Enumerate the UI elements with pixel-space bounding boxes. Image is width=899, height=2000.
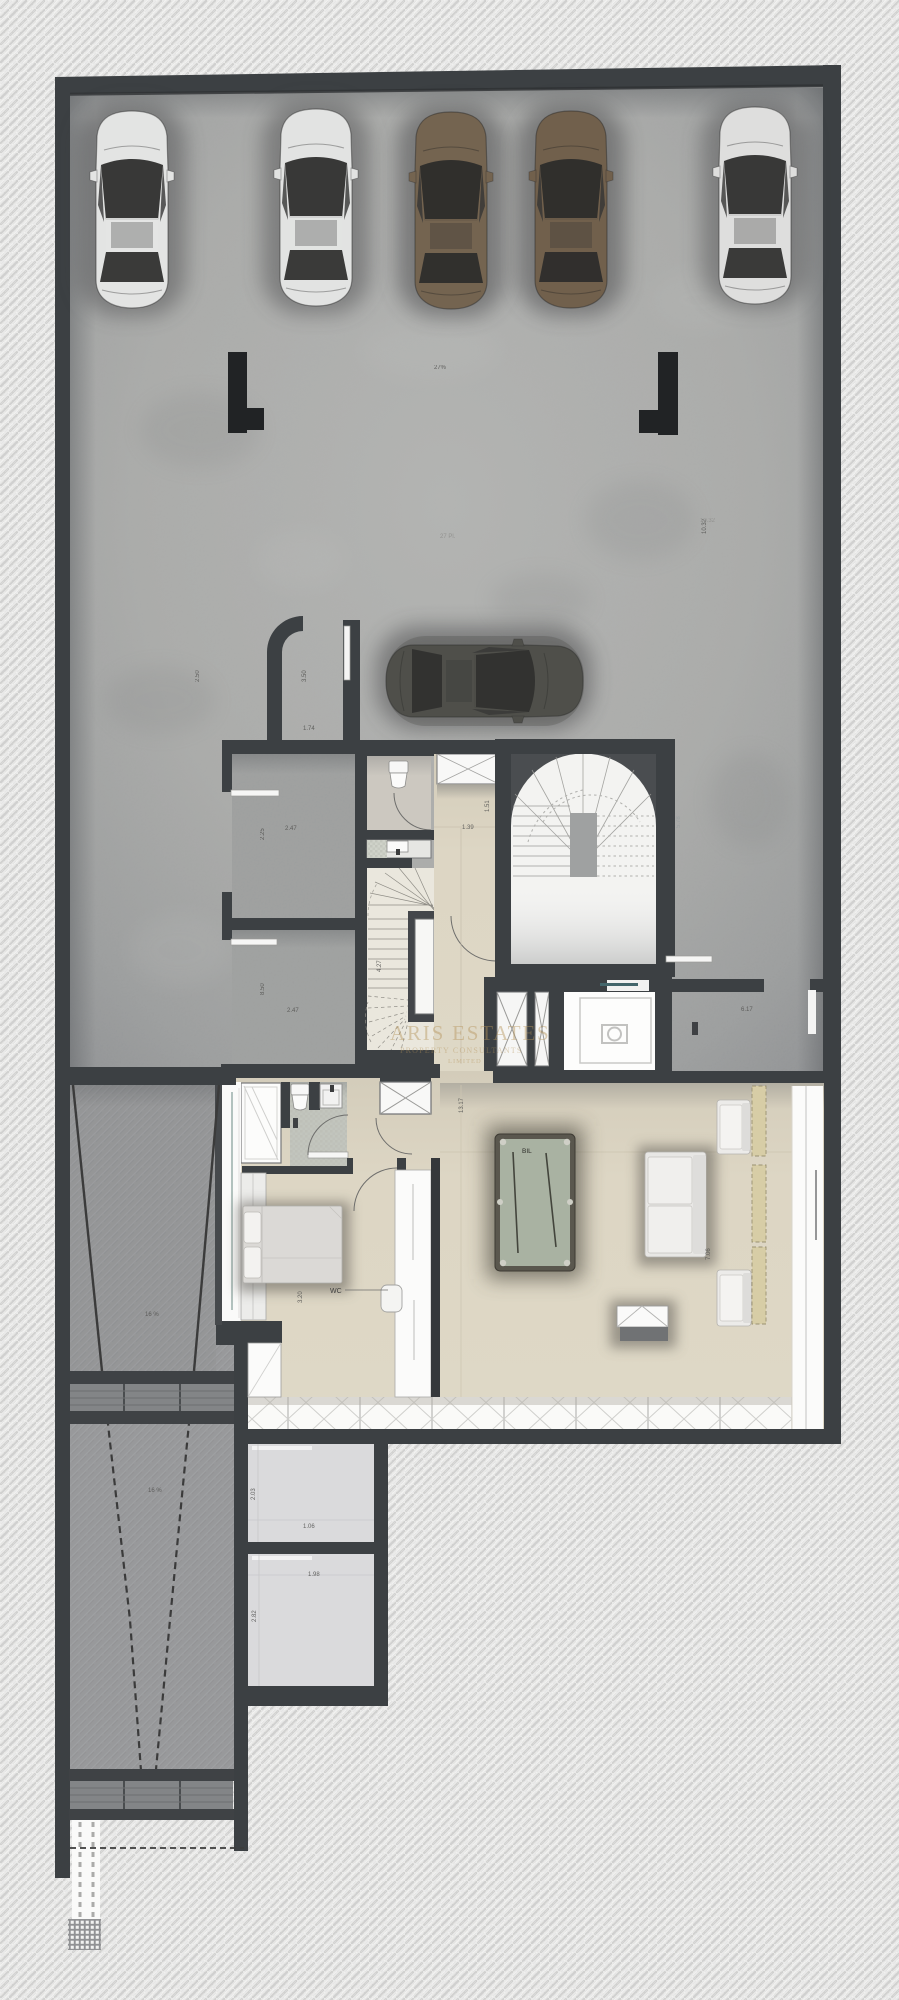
- svg-text:2.82: 2.82: [252, 1610, 258, 1622]
- svg-text:1.39: 1.39: [462, 825, 474, 831]
- svg-text:WC: WC: [330, 1288, 342, 1295]
- svg-text:16 %: 16 %: [145, 1312, 159, 1318]
- svg-text:2.47: 2.47: [287, 1008, 299, 1014]
- svg-text:3.50: 3.50: [302, 670, 308, 682]
- svg-text:1.98: 1.98: [308, 1572, 320, 1578]
- svg-text:8.50: 8.50: [260, 983, 266, 995]
- svg-text:1.06: 1.06: [303, 1524, 315, 1530]
- svg-text:7.06: 7.06: [706, 1248, 712, 1260]
- svg-text:BIL: BIL: [522, 1148, 532, 1155]
- svg-text:2.47: 2.47: [285, 826, 297, 832]
- svg-text:5.78: 5.78: [676, 816, 682, 828]
- svg-text:16 %: 16 %: [148, 1488, 162, 1494]
- svg-text:2.03: 2.03: [251, 1488, 257, 1500]
- svg-text:27 Pl.: 27 Pl.: [440, 534, 456, 540]
- svg-text:1.51: 1.51: [485, 800, 491, 812]
- svg-text:13.17: 13.17: [459, 1097, 465, 1113]
- svg-text:3.20: 3.20: [298, 1291, 304, 1303]
- svg-text:2.25: 2.25: [260, 828, 266, 840]
- svg-text:6.17: 6.17: [741, 1007, 753, 1013]
- svg-text:ARIS ESTATES: ARIS ESTATES: [390, 1021, 551, 1045]
- svg-text:LIMITED: LIMITED: [448, 1058, 482, 1065]
- svg-text:PROPERTY CONSULTANTS: PROPERTY CONSULTANTS: [400, 1046, 523, 1055]
- svg-text:1.74: 1.74: [303, 726, 315, 732]
- svg-text:2.50: 2.50: [195, 670, 201, 682]
- svg-text:4.27: 4.27: [377, 960, 383, 972]
- svg-text:10.32: 10.32: [700, 518, 716, 524]
- svg-text:27%: 27%: [434, 365, 447, 371]
